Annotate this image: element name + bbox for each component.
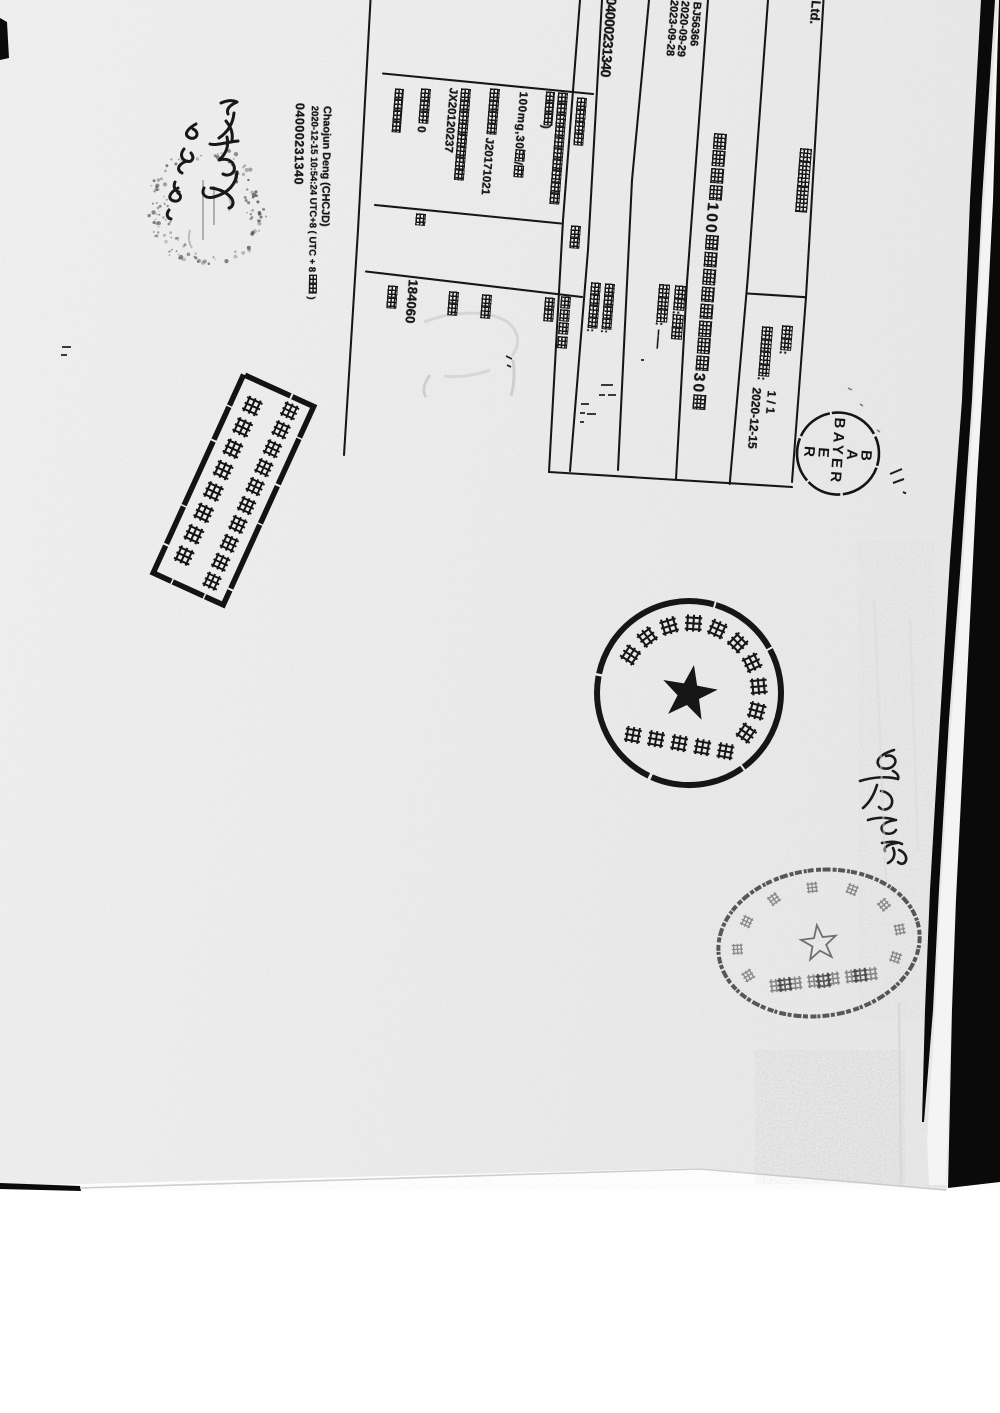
- svg-text:R: R: [800, 445, 818, 457]
- svg-text:A: A: [843, 448, 861, 460]
